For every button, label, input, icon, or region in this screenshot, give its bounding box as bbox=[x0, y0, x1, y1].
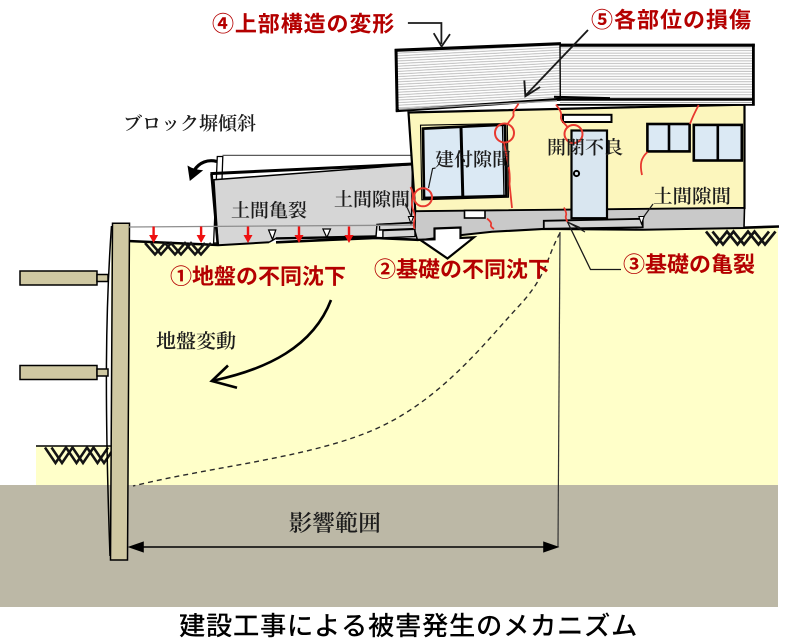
svg-text:⑤各部位の損傷: ⑤各部位の損傷 bbox=[591, 3, 752, 35]
svg-text:開閉不良: 開閉不良 bbox=[547, 133, 623, 160]
svg-text:①地盤の不同沈下: ①地盤の不同沈下 bbox=[170, 259, 346, 291]
svg-text:②基礎の不同沈下: ②基礎の不同沈下 bbox=[374, 252, 550, 284]
svg-text:土間隙間: 土間隙間 bbox=[334, 185, 410, 212]
svg-text:地盤変動: 地盤変動 bbox=[156, 325, 236, 354]
svg-text:④上部構造の変形: ④上部構造の変形 bbox=[212, 7, 395, 39]
svg-text:ブロック塀傾斜: ブロック塀傾斜 bbox=[123, 109, 256, 136]
svg-text:③基礎の亀裂: ③基礎の亀裂 bbox=[623, 247, 755, 279]
svg-text:建設工事による被害発生のメカニズム: 建設工事による被害発生のメカニズム bbox=[179, 604, 638, 639]
svg-text:土間亀裂: 土間亀裂 bbox=[231, 196, 307, 223]
svg-text:影響範囲: 影響範囲 bbox=[289, 505, 381, 538]
svg-text:土間隙間: 土間隙間 bbox=[653, 181, 731, 209]
svg-text:建付隙間: 建付隙間 bbox=[435, 145, 511, 172]
